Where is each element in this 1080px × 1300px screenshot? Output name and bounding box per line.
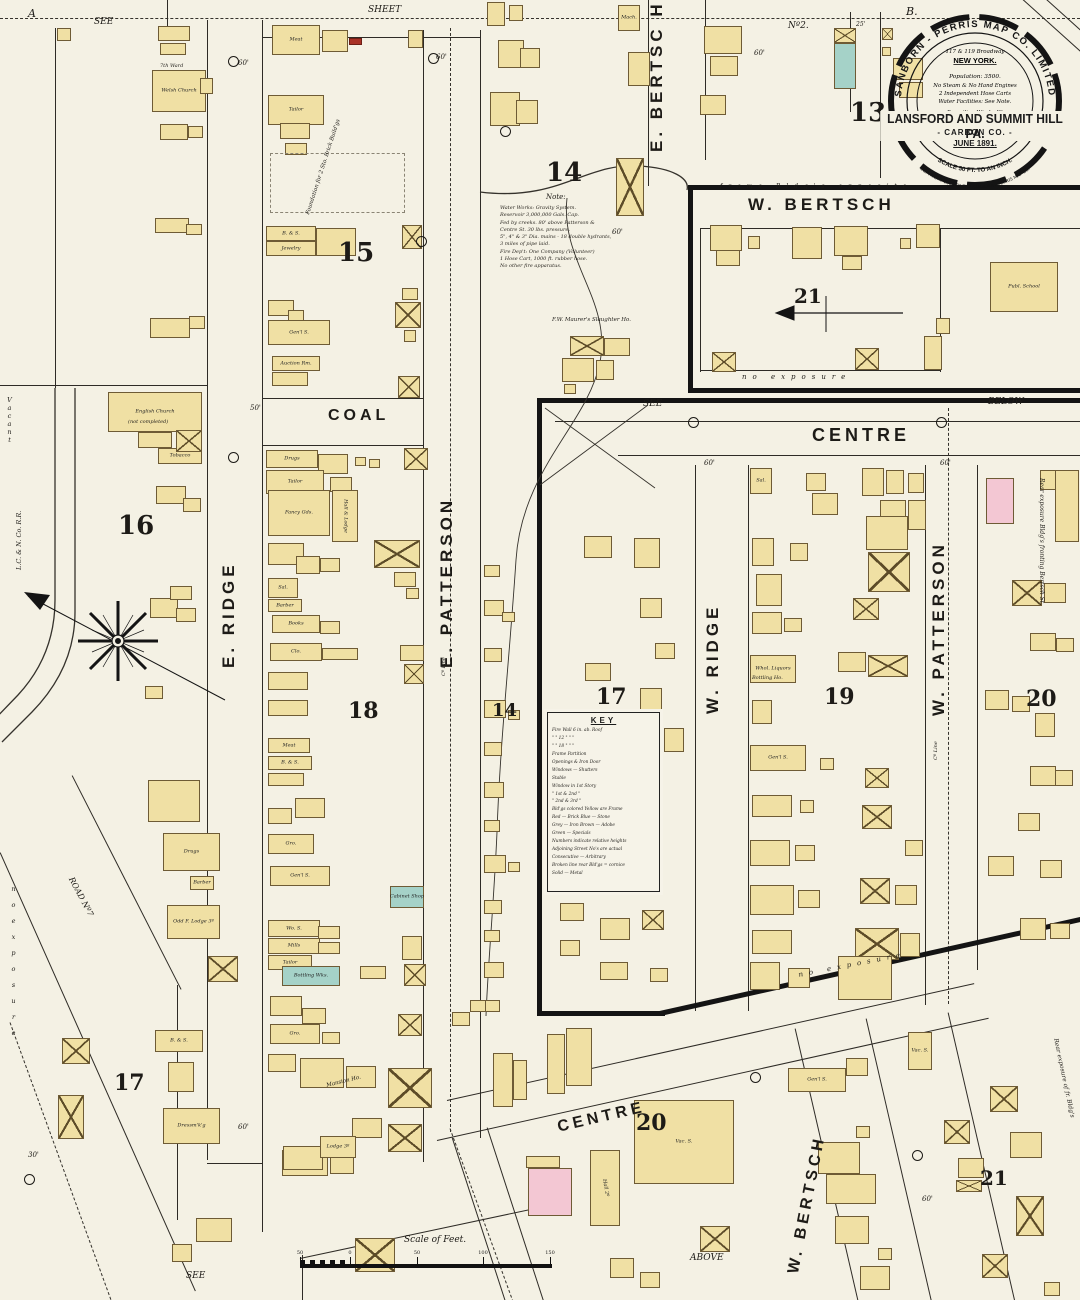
building <box>470 1000 486 1012</box>
building <box>700 1226 730 1252</box>
street-line <box>262 398 423 399</box>
building <box>272 372 308 386</box>
annotation-25: 25' <box>856 22 865 28</box>
seal-water: Water Facilities: See Note. <box>939 99 1012 105</box>
annotation-l-c-n-co-r-r: L.C. & N. Co. R.R. <box>16 511 23 570</box>
annotation-f-w-maurer-s-slaughter-ho: F.W. Maurer's Slaughter Ho. <box>552 318 631 324</box>
inset-border <box>537 1011 665 1016</box>
building <box>1035 713 1055 737</box>
creek-line <box>486 198 602 1016</box>
building <box>484 820 500 832</box>
block-line <box>940 228 941 372</box>
building <box>944 1120 970 1144</box>
marker-icon <box>912 1150 923 1161</box>
key-row: Grey — Iron Brown — Adobe <box>552 822 655 830</box>
building <box>700 95 726 115</box>
building-lodge-3: Lodge 3º <box>320 1136 356 1158</box>
building-label: B. & S. <box>170 1039 188 1044</box>
building <box>322 648 358 660</box>
annotation-no-exposure: no exposure <box>798 951 907 979</box>
building <box>352 1118 382 1138</box>
building <box>285 143 307 155</box>
building <box>1010 1132 1042 1158</box>
seal-address: 117 & 119 Broadway <box>945 49 1005 55</box>
annotation-n-2: Nº2. <box>788 22 809 31</box>
note-line: Centre St. 30 lbs. pressure. <box>500 227 680 234</box>
building-hall-2: Hall 2º <box>590 1150 620 1226</box>
building <box>640 1272 660 1288</box>
centre-street-line <box>437 1018 989 1142</box>
water-fire-note: Water Works: Gravity System.Reservoir 3,… <box>500 205 680 270</box>
block-number-17: 17 <box>596 686 627 708</box>
building-label: Dressm'k'g <box>177 1124 205 1129</box>
building <box>484 565 500 577</box>
building <box>268 672 308 690</box>
street-line <box>480 30 481 1138</box>
building-gro: Gro. <box>268 834 314 854</box>
building <box>868 655 908 677</box>
note-line: 5", 4" & 3" Dia. mains - 18 double hydra… <box>500 234 680 241</box>
building <box>878 1248 892 1260</box>
annotation-not-completed: (not completed) <box>128 420 168 425</box>
block-number-20: 20 <box>1026 688 1057 710</box>
building <box>268 773 304 786</box>
building <box>860 878 890 904</box>
building <box>834 28 856 43</box>
building <box>860 1266 890 1290</box>
building-tobacco: Tobacco <box>158 448 202 464</box>
building <box>484 742 502 756</box>
key-rows: Fire Wall 6 in. ab. Roof" " 12 " " "" " … <box>552 727 655 878</box>
building <box>150 318 190 338</box>
bertsch-street-line <box>947 1013 1017 1300</box>
street-label-w-bertsch: W. BERTSCH <box>748 196 895 213</box>
street-line <box>423 30 424 1162</box>
building <box>268 1054 296 1072</box>
building-publ-school: Publ. School <box>990 262 1058 312</box>
building-label: Welsh Church <box>161 89 196 94</box>
street-line <box>167 0 168 40</box>
building <box>498 40 524 68</box>
marker-icon <box>416 236 427 247</box>
building <box>908 500 926 530</box>
building <box>1030 633 1056 651</box>
building <box>600 918 630 940</box>
building-jewelry: Jewelry <box>266 241 316 256</box>
block-line <box>177 985 178 1220</box>
building <box>1056 638 1074 652</box>
block-number-14: 14 <box>492 702 517 720</box>
street-label-coal: COAL <box>328 408 389 424</box>
block-line <box>700 228 701 372</box>
building-vac-s: Vac. S. <box>634 1100 734 1184</box>
building-whol-liquors: Whol. Liquors <box>750 655 796 683</box>
building <box>398 1014 422 1036</box>
building <box>1030 766 1056 786</box>
patterson-centerline <box>450 28 451 1132</box>
building-label: Hall 2º <box>601 1179 609 1197</box>
building <box>320 621 340 634</box>
building <box>400 645 424 661</box>
building <box>295 798 325 818</box>
building <box>570 336 604 356</box>
building <box>168 1062 194 1092</box>
building-auction-rm: Auction Rm. <box>272 356 320 371</box>
building <box>318 926 340 939</box>
key-row: Numbers indicate relative heights <box>552 838 655 846</box>
block-number-19: 19 <box>824 686 855 708</box>
building <box>349 38 362 45</box>
scale-tick <box>350 1257 351 1265</box>
building <box>320 558 340 572</box>
note-line: No other fire apparatus. <box>500 263 680 270</box>
key-row: Green — Specials <box>552 830 655 838</box>
building-bottling-wks: Bottling Wks. <box>282 966 340 986</box>
scale-tick-label: 0 <box>348 1250 351 1256</box>
building <box>866 516 908 550</box>
building <box>484 700 506 718</box>
building <box>792 227 822 259</box>
annotation-c-line: Cº Line <box>934 741 939 760</box>
building <box>547 1034 565 1094</box>
building <box>346 1066 376 1088</box>
pond-outline <box>480 166 687 194</box>
building <box>600 962 628 980</box>
building <box>856 1126 870 1138</box>
building <box>388 1068 432 1108</box>
building <box>812 493 838 515</box>
building <box>268 300 294 316</box>
building-dressm-k-g: Dressm'k'g <box>163 1108 220 1144</box>
building <box>752 612 782 634</box>
annotation-mansion-ho: Mansion Ho. <box>326 1075 362 1089</box>
dashed-road-line <box>10 1022 114 1300</box>
block-number-15: 15 <box>338 240 374 266</box>
road-7-line <box>0 852 196 1291</box>
map-key-legend: KEY Fire Wall 6 in. ab. Roof" " 12 " " "… <box>547 712 660 892</box>
street-line <box>648 0 649 186</box>
building-label: Clo. <box>291 650 301 655</box>
street-line <box>977 465 978 970</box>
building <box>283 1146 323 1170</box>
building <box>484 900 502 914</box>
building-label: Whol. Liquors <box>755 667 790 672</box>
block-number-14: 14 <box>546 160 582 186</box>
building-tailor: Tailor <box>268 955 312 970</box>
building-label: Drugs <box>284 457 299 462</box>
building-vac-s: Vac. S. <box>908 1032 932 1070</box>
building <box>1044 583 1066 603</box>
building <box>160 124 188 140</box>
street-label-w-patterson: W. PATTERSON <box>930 541 947 716</box>
street-line <box>705 0 706 160</box>
building-label: Gen'l S. <box>289 330 309 335</box>
building <box>170 586 192 600</box>
building <box>484 600 504 616</box>
building <box>752 700 772 724</box>
street-label-w-ridge: W. RIDGE <box>704 604 721 714</box>
building-label: Wo. S. <box>286 926 302 931</box>
building <box>664 728 684 752</box>
building <box>296 556 320 574</box>
building <box>330 477 352 492</box>
building <box>886 470 904 494</box>
annotation-bottling-ho: Bottling Ho. <box>752 676 783 681</box>
inset-border <box>659 916 1080 1016</box>
building <box>895 885 917 905</box>
building <box>585 663 611 681</box>
building <box>288 310 304 321</box>
building <box>834 43 856 89</box>
key-row: Consecutive — Arbitrary <box>552 854 655 862</box>
street-line <box>207 20 208 1160</box>
building-b-s: B. & S. <box>266 226 316 241</box>
annotation-60: 60' <box>922 1196 933 1203</box>
building <box>388 1124 422 1152</box>
annotation-foundation-for-2-sto-brick-build-gs: Foundation for 2 Sto. Brick Build'gs <box>306 119 342 216</box>
inset-border <box>537 398 542 1015</box>
building-books: Books <box>272 615 320 633</box>
building <box>406 588 419 599</box>
building <box>958 1158 984 1178</box>
building <box>183 498 201 512</box>
building-barber: Barber <box>268 599 302 612</box>
building <box>905 840 923 856</box>
building-fancy-gds: Fancy Gds. <box>268 490 330 536</box>
scale-tick-label: 150 <box>545 1250 555 1256</box>
building <box>800 800 814 813</box>
street-label-centre: CENTRE <box>556 1100 647 1136</box>
building-label: Barber <box>276 603 294 608</box>
building <box>408 30 423 48</box>
annotation-60: 60' <box>238 1124 249 1131</box>
building <box>394 572 416 587</box>
building <box>610 1258 634 1278</box>
street-line <box>262 445 423 446</box>
note-line: Water Works: Gravity System. <box>500 205 680 212</box>
marker-icon <box>750 1072 761 1083</box>
building <box>564 384 576 394</box>
building <box>268 543 304 565</box>
building <box>1040 470 1058 490</box>
building <box>862 468 884 496</box>
building-label: Mills <box>288 944 300 949</box>
annotation-note: Note: <box>546 194 566 201</box>
building-label: Vac. S. <box>676 1140 693 1145</box>
building <box>176 430 202 452</box>
annotation-60: 60' <box>704 460 715 467</box>
building-label: Gro. <box>290 1032 301 1037</box>
annotation-n-o-e-x-p-o-s-u-r-e: n o e x p o s u r e <box>10 885 17 1037</box>
building-tailor: Tailor <box>268 95 324 125</box>
seal-county: - CARBON CO. - <box>872 128 1078 137</box>
building-sal: Sal. <box>750 468 772 494</box>
building-tailor: Tailor <box>266 470 324 494</box>
building <box>640 598 662 618</box>
street-line <box>925 465 926 1005</box>
marker-icon <box>428 53 439 64</box>
building <box>1040 860 1062 878</box>
building <box>487 2 505 26</box>
building-gen-l-s: Gen'l S. <box>750 745 806 771</box>
street-line <box>695 465 696 1011</box>
street-label-e-bertsc-h: E. BERTSC H <box>648 0 665 152</box>
building-meat: Meat <box>272 25 320 55</box>
street-line <box>618 455 1080 456</box>
street-label-w-bertsch: W. BERTSCH <box>786 1134 829 1275</box>
annotation-rear-exposure-of-fr-bldg-s: Rear exposure of fr. Bldg's <box>1052 1038 1075 1118</box>
building <box>402 225 422 249</box>
building-cabinet-shop: Cabinet Shop <box>390 886 424 908</box>
note-line: 3 miles of pipe laid. <box>500 241 680 248</box>
note-line: 1 Hose Cart, 1000 ft. rubber hose. <box>500 256 680 263</box>
building <box>62 1038 90 1064</box>
annotation-sheet: SHEET <box>368 6 401 15</box>
building <box>188 126 203 138</box>
building-label: Tobacco <box>170 454 191 459</box>
key-row: Fire Wall 6 in. ab. Roof <box>552 727 655 735</box>
building-label: Fancy Gds. <box>285 511 313 516</box>
building-label: Publ. School <box>1008 285 1040 290</box>
scale-bar: 50050100150 <box>300 1252 560 1274</box>
building <box>189 316 205 329</box>
building <box>516 100 538 124</box>
building-clo: Clo. <box>270 643 322 661</box>
building <box>752 795 792 817</box>
annotation-see: SEE <box>94 18 113 27</box>
street-line <box>555 421 1080 422</box>
marker-icon <box>688 417 699 428</box>
building <box>604 338 630 356</box>
building <box>508 710 520 720</box>
building <box>868 552 910 592</box>
building <box>150 598 178 618</box>
key-row: Bld'gs colored Yellow are Frame <box>552 806 655 814</box>
building <box>158 26 190 41</box>
annotation-50: 50' <box>250 405 261 412</box>
patterson-centerline <box>948 408 949 1004</box>
marker-icon <box>24 1174 35 1185</box>
building-mills: Mills <box>268 938 320 954</box>
building <box>1044 1282 1060 1296</box>
building-barber: Barber <box>190 876 214 890</box>
key-row: Solid — Metal <box>552 870 655 878</box>
building <box>402 936 422 960</box>
key-row: " 2nd & 3rd " <box>552 798 655 806</box>
building <box>186 224 202 235</box>
building-drugs: Drugs <box>163 833 220 871</box>
building <box>908 473 924 493</box>
annotation-c-line: Cº Line <box>442 657 447 676</box>
building <box>526 1156 560 1168</box>
building <box>360 966 386 979</box>
building <box>374 540 420 568</box>
building-label: Gen'l S. <box>807 1078 827 1083</box>
building <box>520 48 540 68</box>
street-line <box>262 20 263 1232</box>
building-gen-l-s: Gen'l S. <box>268 320 330 345</box>
note-line: Reservoir 3,000,000 Gals. Cap. <box>500 212 680 219</box>
building <box>155 218 189 233</box>
building <box>1018 813 1040 831</box>
street-line <box>748 465 749 1011</box>
building <box>560 903 584 921</box>
block-number-17: 17 <box>114 1072 145 1094</box>
building-label: Auction Rm. <box>280 361 311 366</box>
building-label: Bottling Wks. <box>294 974 328 979</box>
street-line <box>700 228 1080 229</box>
building <box>322 30 348 52</box>
building-label: Cabinet Shop <box>390 895 424 900</box>
annotation-vacant: Vacant <box>6 396 13 444</box>
building-label: Sal. <box>278 586 288 591</box>
building <box>270 153 405 213</box>
building <box>493 1053 513 1107</box>
building <box>1055 470 1079 542</box>
sanborn-seal: SANBORN - PERRIS MAP CO. LIMITED 117 & 1… <box>868 6 1080 191</box>
building <box>784 618 802 632</box>
building <box>282 1150 328 1176</box>
marker-icon <box>228 56 239 67</box>
building-label: Tailor <box>289 108 304 113</box>
building <box>862 805 892 829</box>
building <box>490 92 520 126</box>
scale-bar-rule <box>300 1264 552 1268</box>
block-line <box>0 385 207 386</box>
seal-hose: 2 Independent Hose Carts <box>938 91 1011 97</box>
block-number-18: 18 <box>348 700 379 722</box>
building <box>750 885 794 915</box>
building <box>752 930 792 954</box>
building-label: English Church <box>135 410 174 415</box>
seal-date: JUNE 1891. <box>872 139 1078 148</box>
building <box>846 1058 868 1076</box>
seal-population: Population: 3500. <box>948 74 1001 80</box>
street-line <box>55 28 56 388</box>
building-label: Tailor <box>288 480 303 485</box>
building-label: Gen'l S. <box>290 874 310 879</box>
building <box>704 26 742 54</box>
street-label-centre: CENTRE <box>812 426 910 444</box>
building <box>1016 1196 1044 1236</box>
building <box>985 690 1009 710</box>
building <box>145 686 163 699</box>
building <box>302 1008 326 1024</box>
key-row: " 1st & 2nd " <box>552 791 655 799</box>
railroad-line <box>0 388 55 722</box>
building <box>838 652 866 672</box>
building <box>484 855 506 873</box>
building-label: Jewelry <box>281 246 300 251</box>
building <box>795 845 815 861</box>
inset-border <box>688 388 1080 393</box>
building-gen-l-s: Gen'l S. <box>270 866 330 886</box>
building <box>855 928 899 960</box>
building <box>634 538 660 568</box>
annotation-7th-ward: 7th Ward <box>160 64 183 69</box>
building <box>208 956 238 982</box>
bertsch-street-line <box>794 1029 859 1300</box>
inset-border <box>688 185 693 393</box>
road-7-line <box>71 775 181 989</box>
annotation-60: 60' <box>940 460 951 467</box>
building <box>990 1086 1018 1112</box>
building <box>484 962 504 978</box>
marker-icon <box>500 126 511 137</box>
building <box>484 1000 500 1012</box>
building <box>752 538 774 566</box>
building <box>988 856 1014 876</box>
